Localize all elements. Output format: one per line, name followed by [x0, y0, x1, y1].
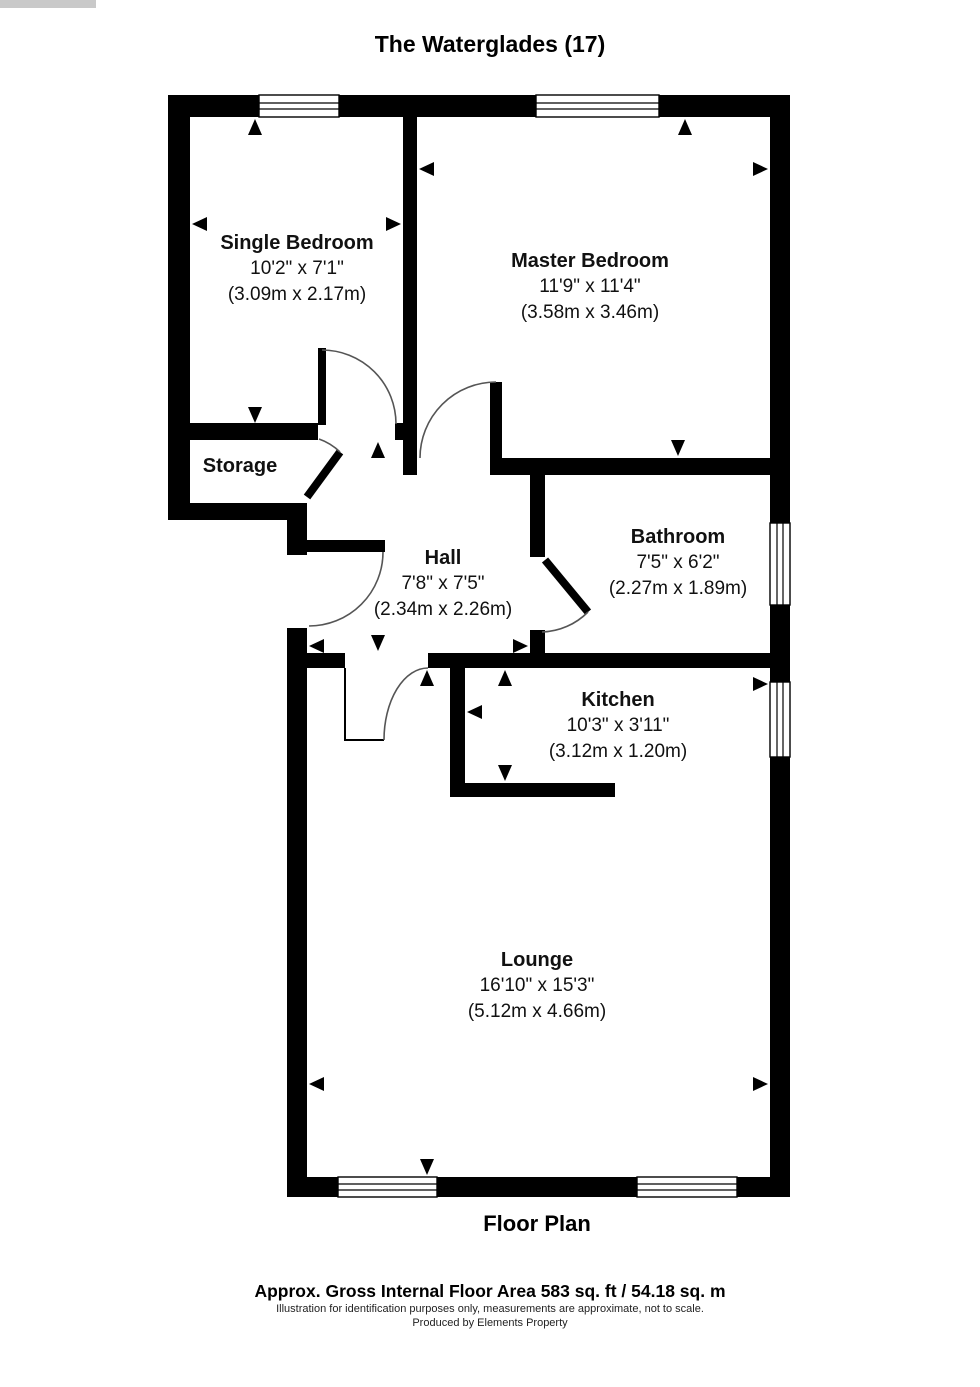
window-master-bedroom	[536, 95, 659, 117]
room-dim-metric: (2.27m x 1.89m)	[609, 576, 747, 602]
arrow-left-icon	[467, 705, 482, 719]
disclaimer-text: Illustration for identification purposes…	[276, 1303, 704, 1315]
room-label-kitchen: Kitchen 10'3" x 3'11" (3.12m x 1.20m)	[549, 687, 687, 765]
room-label-bathroom: Bathroom 7'5" x 6'2" (2.27m x 1.89m)	[609, 524, 747, 602]
bathroom-door-arc	[542, 612, 588, 632]
wall-right	[770, 95, 790, 1197]
wall-left-upper	[168, 95, 190, 520]
room-label-lounge: Lounge 16'10" x 15'3" (5.12m x 4.66m)	[468, 947, 606, 1025]
entrance-door-arc	[309, 552, 383, 626]
arrow-right-icon	[753, 677, 768, 691]
room-dim-metric: (3.12m x 1.20m)	[549, 739, 687, 765]
room-dim-metric: (5.12m x 4.66m)	[468, 999, 606, 1025]
master-bedroom-door-arc	[420, 382, 496, 458]
arrow-up-icon	[420, 670, 434, 686]
single-bedroom-door-leaf	[318, 348, 326, 425]
wall-bathroom-left-a	[530, 475, 545, 557]
room-dim-imperial: 11'9" x 11'4"	[511, 274, 669, 300]
arrow-right-icon	[753, 1077, 768, 1091]
window-kitchen	[770, 682, 790, 757]
arrow-down-icon	[248, 407, 262, 423]
plan-caption: Floor Plan	[483, 1211, 591, 1237]
wall-storage-bottom	[168, 503, 307, 520]
arrow-up-icon	[678, 119, 692, 135]
room-dim-imperial: 10'2" x 7'1"	[220, 256, 373, 282]
arrow-down-icon	[498, 765, 512, 781]
floor-area-text: Approx. Gross Internal Floor Area 583 sq…	[254, 1281, 725, 1302]
wall-master-bottom	[490, 458, 790, 475]
arrow-right-icon	[386, 217, 401, 231]
room-dim-imperial: 7'8" x 7'5"	[374, 571, 512, 597]
room-dim-imperial: 10'3" x 3'11"	[549, 713, 687, 739]
window-single-bedroom	[259, 95, 339, 117]
storage-door-leaf	[307, 452, 340, 497]
arrow-left-icon	[192, 217, 207, 231]
room-name: Hall	[374, 545, 512, 571]
arrow-down-icon	[420, 1159, 434, 1175]
window-lounge-right	[637, 1177, 737, 1197]
arrow-down-icon	[371, 635, 385, 651]
wall-left-lower-b	[287, 628, 307, 1197]
bathroom-door-leaf	[545, 560, 588, 612]
room-dim-metric: (2.34m x 2.26m)	[374, 597, 512, 623]
room-name: Lounge	[468, 947, 606, 973]
wall-hall-bottom-b	[428, 653, 770, 668]
window-lounge-left	[338, 1177, 437, 1197]
arrow-left-icon	[309, 639, 324, 653]
room-name: Kitchen	[549, 687, 687, 713]
arrow-left-icon	[309, 1077, 324, 1091]
room-label-single-bedroom: Single Bedroom 10'2" x 7'1" (3.09m x 2.1…	[220, 230, 373, 308]
arrow-right-icon	[513, 639, 528, 653]
room-name: Master Bedroom	[511, 248, 669, 274]
wall-storage-top	[168, 423, 318, 440]
room-name: Single Bedroom	[220, 230, 373, 256]
wall-partition-bedrooms	[403, 117, 417, 475]
hall-lounge-door-arc	[384, 668, 428, 740]
room-name: Storage	[203, 453, 277, 479]
floorplan-page: The Waterglades (17)	[0, 0, 980, 1387]
single-bedroom-door-arc	[322, 350, 396, 424]
room-label-master-bedroom: Master Bedroom 11'9" x 11'4" (3.58m x 3.…	[511, 248, 669, 326]
room-dim-imperial: 16'10" x 15'3"	[468, 973, 606, 999]
room-dim-imperial: 7'5" x 6'2"	[609, 550, 747, 576]
room-label-hall: Hall 7'8" x 7'5" (2.34m x 2.26m)	[374, 545, 512, 623]
hall-lounge-door-leaf	[345, 668, 384, 740]
wall-hall-bottom-a	[307, 653, 345, 668]
storage-door-arc	[319, 439, 340, 452]
arrow-right-icon	[753, 162, 768, 176]
arrow-up-icon	[371, 442, 385, 458]
room-dim-metric: (3.09m x 2.17m)	[220, 282, 373, 308]
floorplan-drawing	[0, 0, 980, 1387]
arrow-down-icon	[671, 440, 685, 456]
room-dim-metric: (3.58m x 3.46m)	[511, 300, 669, 326]
arrow-left-icon	[419, 162, 434, 176]
arrow-up-icon	[498, 670, 512, 686]
wall-kitchen-bottom	[450, 783, 615, 797]
master-bedroom-door-leaf	[490, 382, 502, 458]
window-bathroom	[770, 523, 790, 605]
producer-text: Produced by Elements Property	[412, 1317, 567, 1329]
room-name: Bathroom	[609, 524, 747, 550]
wall-kitchen-left	[450, 668, 465, 797]
room-label-storage: Storage	[203, 453, 277, 479]
arrow-up-icon	[248, 119, 262, 135]
